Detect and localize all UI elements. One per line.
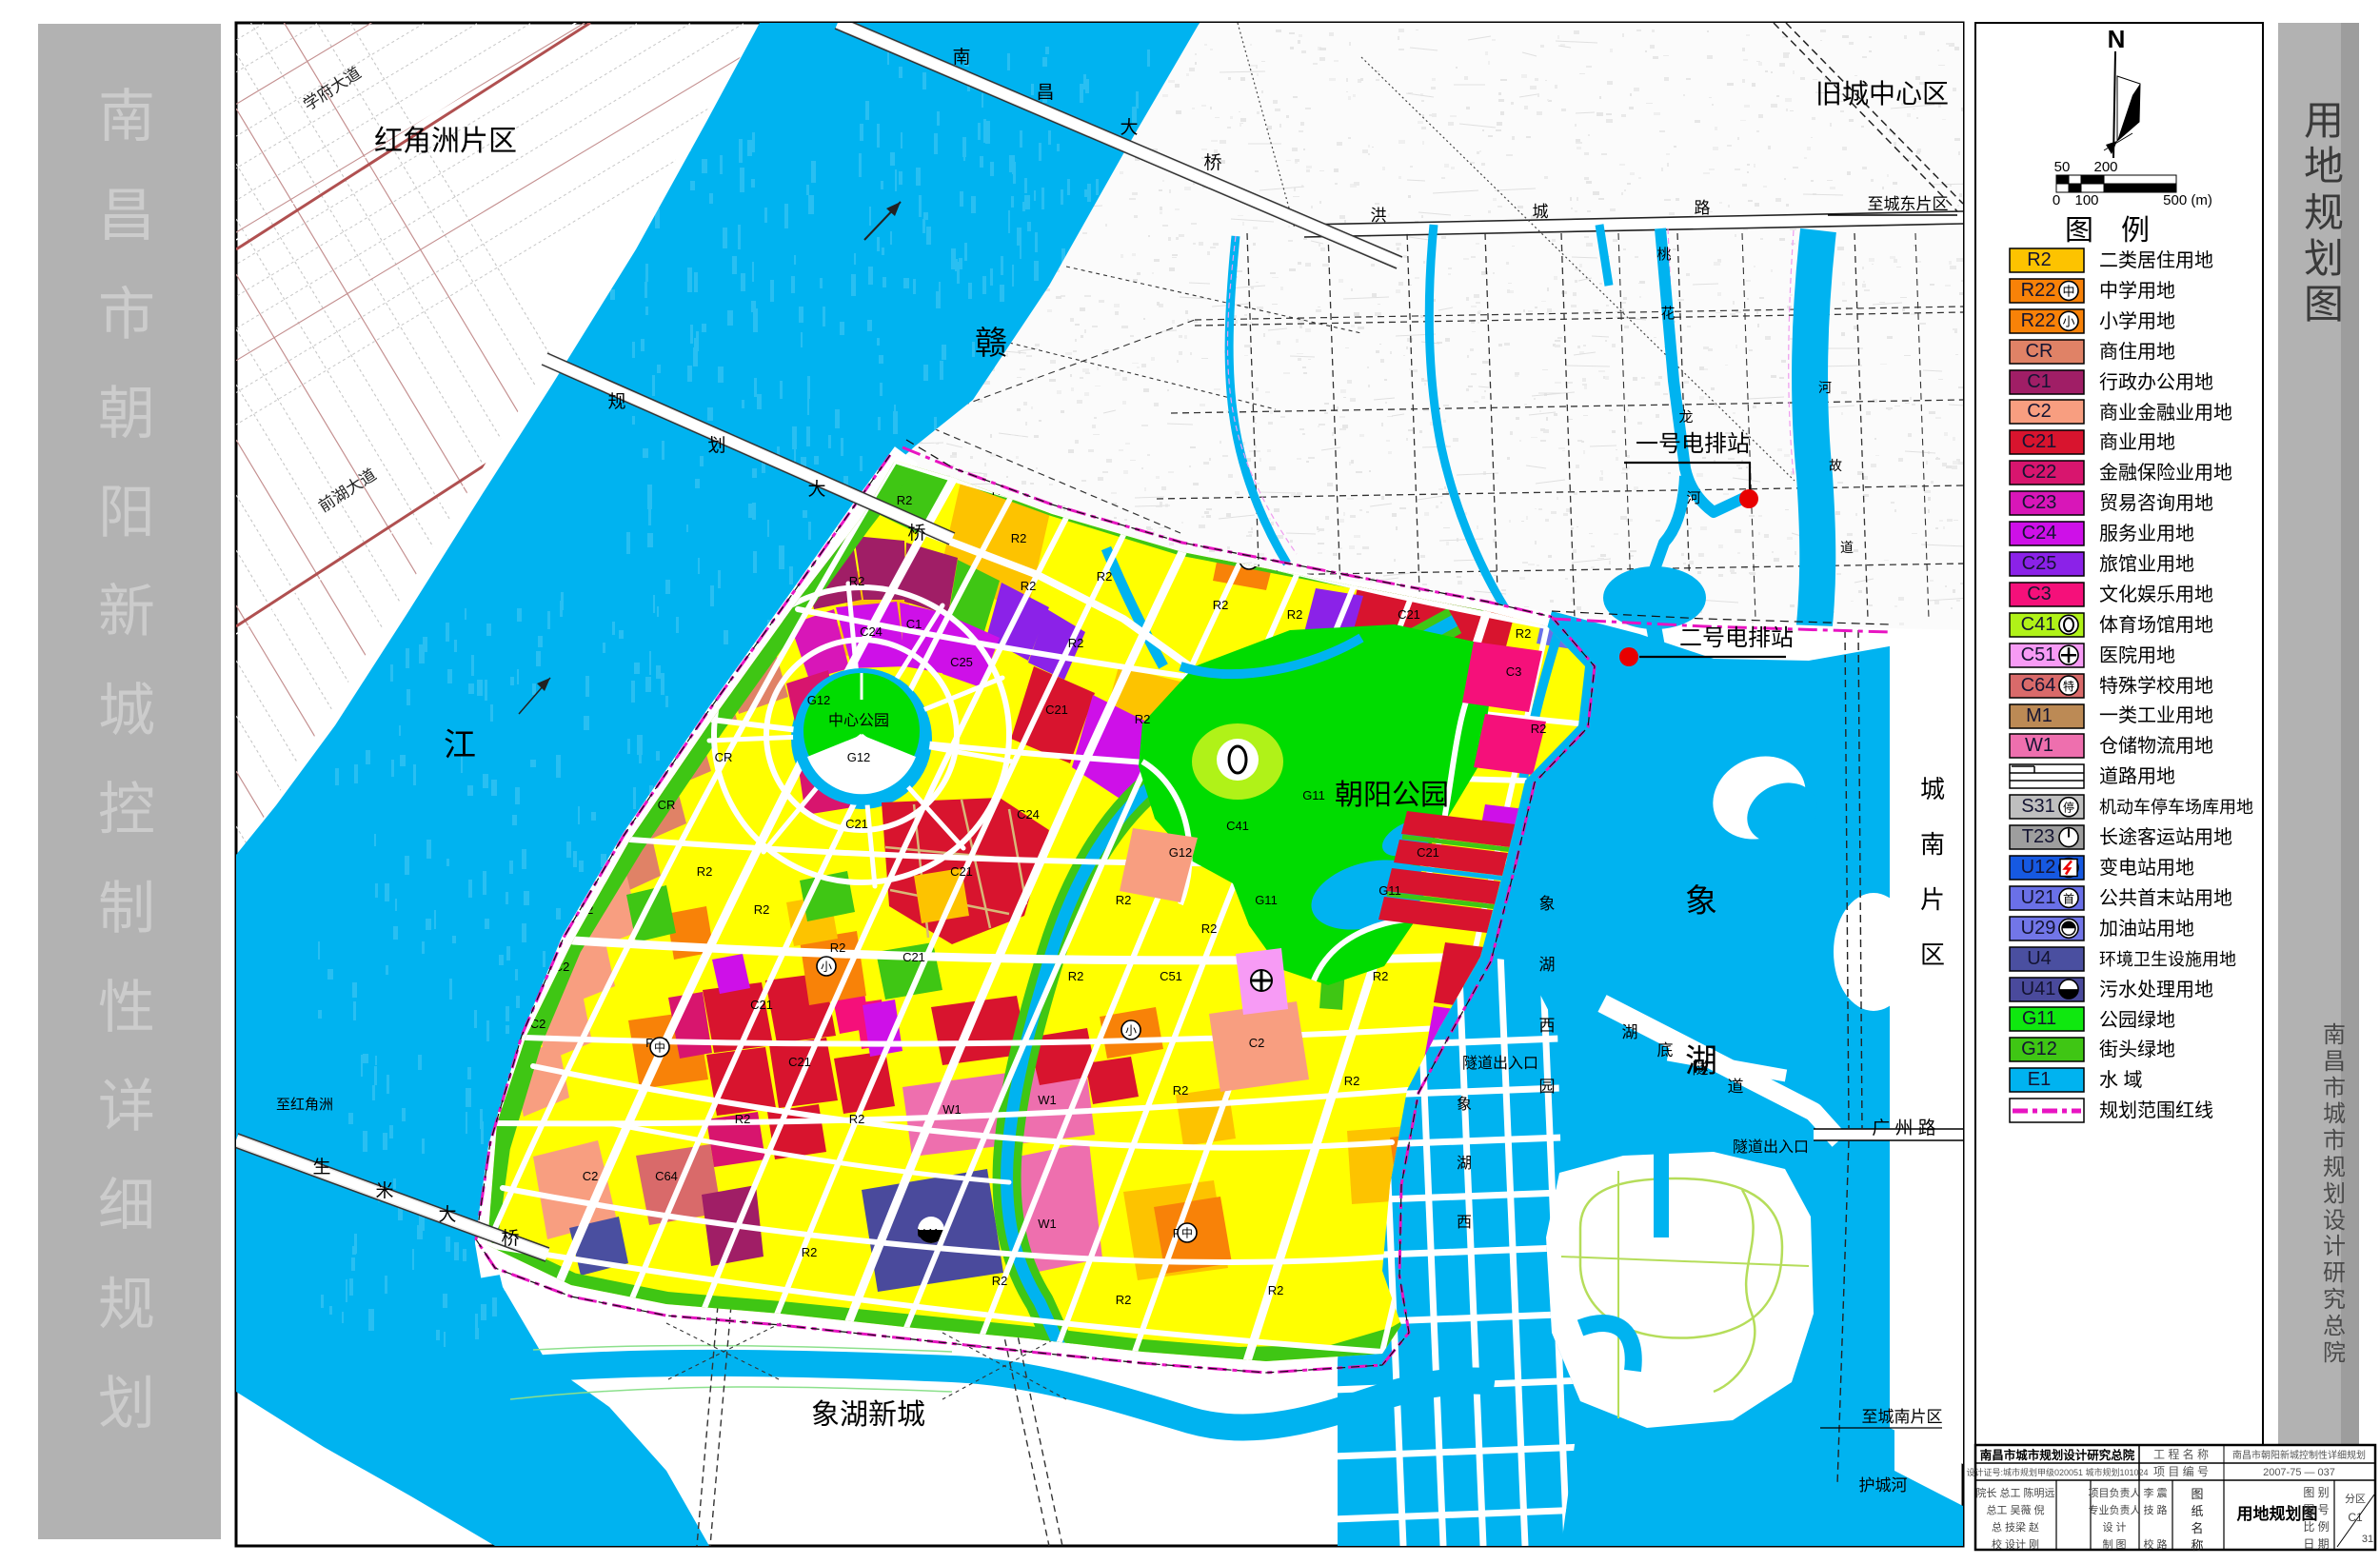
svg-text:院: 院 bbox=[2323, 1340, 2346, 1366]
svg-text:C24: C24 bbox=[860, 624, 883, 639]
svg-text:贸易咨询用地: 贸易咨询用地 bbox=[2099, 492, 2213, 514]
svg-text:污水处理用地: 污水处理用地 bbox=[2099, 979, 2213, 1000]
svg-text:R2: R2 bbox=[897, 493, 913, 507]
svg-text:W1: W1 bbox=[1038, 1093, 1057, 1107]
svg-text:计: 计 bbox=[2323, 1234, 2346, 1259]
svg-text:项目负责人: 项目负责人 bbox=[2089, 1486, 2141, 1499]
svg-text:N: N bbox=[2108, 25, 2126, 53]
svg-text:500 (m): 500 (m) bbox=[2163, 192, 2212, 208]
svg-text:100: 100 bbox=[2074, 192, 2098, 208]
svg-text:G12: G12 bbox=[807, 693, 831, 707]
svg-text:红角洲片区: 红角洲片区 bbox=[374, 126, 517, 157]
svg-text:水 域: 水 域 bbox=[2099, 1069, 2143, 1091]
svg-text:校 设计 刚: 校 设计 刚 bbox=[1992, 1537, 2039, 1551]
svg-text:R2: R2 bbox=[849, 574, 865, 588]
svg-text:道路用地: 道路用地 bbox=[2099, 765, 2175, 787]
svg-text:研: 研 bbox=[2323, 1260, 2346, 1286]
svg-text:G11: G11 bbox=[1378, 883, 1401, 898]
svg-text:R2: R2 bbox=[1213, 598, 1229, 612]
svg-text:环境卫生设施用地: 环境卫生设施用地 bbox=[2099, 950, 2236, 969]
svg-text:R2: R2 bbox=[1268, 1283, 1284, 1297]
svg-text:50: 50 bbox=[2054, 159, 2071, 175]
svg-text:G12: G12 bbox=[847, 750, 871, 764]
svg-text:C21: C21 bbox=[750, 998, 773, 1012]
svg-text:湖: 湖 bbox=[1622, 1023, 1638, 1041]
svg-text:隧道出入口: 隧道出入口 bbox=[1462, 1055, 1538, 1072]
svg-text:中学用地: 中学用地 bbox=[2099, 280, 2175, 302]
svg-text:R2: R2 bbox=[1201, 921, 1218, 936]
svg-text:特: 特 bbox=[2063, 679, 2074, 693]
svg-text:W1: W1 bbox=[942, 1102, 962, 1117]
svg-text:G11: G11 bbox=[1255, 893, 1278, 907]
svg-text:城: 城 bbox=[2323, 1101, 2346, 1127]
svg-text:湖: 湖 bbox=[1539, 956, 1556, 974]
svg-text:设计证号:城市规划甲级020051 城市规划101024: 设计证号:城市规划甲级020051 城市规划101024 bbox=[1966, 1467, 2148, 1477]
svg-text:桥: 桥 bbox=[501, 1228, 519, 1249]
svg-text:南: 南 bbox=[2323, 1022, 2346, 1048]
svg-text:C21: C21 bbox=[1045, 703, 1068, 717]
svg-text:G12: G12 bbox=[2021, 1039, 2057, 1059]
svg-text:R2: R2 bbox=[1135, 712, 1151, 726]
svg-text:规: 规 bbox=[98, 1273, 155, 1336]
svg-text:R2: R2 bbox=[1097, 569, 1113, 584]
svg-text:项 目 编 号: 项 目 编 号 bbox=[2153, 1464, 2209, 1478]
svg-text:生: 生 bbox=[312, 1157, 330, 1178]
svg-text:小: 小 bbox=[2062, 314, 2074, 328]
svg-text:控: 控 bbox=[98, 778, 155, 841]
svg-text:R2: R2 bbox=[1287, 607, 1303, 622]
svg-text:昌: 昌 bbox=[1036, 83, 1054, 103]
svg-text:G11: G11 bbox=[2022, 1008, 2056, 1029]
svg-text:细: 细 bbox=[98, 1174, 155, 1237]
svg-text:C23: C23 bbox=[2022, 492, 2057, 513]
svg-text:R2: R2 bbox=[1373, 969, 1389, 983]
svg-text:机动车停车场库用地: 机动车停车场库用地 bbox=[2099, 798, 2253, 817]
svg-text:中: 中 bbox=[2062, 284, 2074, 298]
svg-text:总工 吴薇 倪: 总工 吴薇 倪 bbox=[1986, 1503, 2044, 1516]
svg-text:新: 新 bbox=[98, 580, 155, 643]
svg-text:U21: U21 bbox=[2021, 887, 2056, 908]
svg-text:规: 规 bbox=[607, 391, 625, 412]
svg-text:旅馆业用地: 旅馆业用地 bbox=[2099, 553, 2194, 575]
svg-text:制 图: 制 图 bbox=[2102, 1538, 2126, 1551]
svg-text:河: 河 bbox=[1818, 380, 1832, 395]
svg-text:究: 究 bbox=[2323, 1287, 2346, 1313]
svg-text:一类工业用地: 一类工业用地 bbox=[2099, 704, 2213, 726]
svg-text:C2: C2 bbox=[2027, 401, 2052, 422]
svg-text:象: 象 bbox=[1685, 883, 1717, 920]
svg-text:200: 200 bbox=[2093, 159, 2117, 175]
svg-text:U4: U4 bbox=[2027, 948, 2052, 969]
svg-text:C3: C3 bbox=[2027, 584, 2052, 604]
svg-text:小: 小 bbox=[821, 960, 832, 974]
svg-text:C21: C21 bbox=[1417, 845, 1439, 860]
svg-text:制: 制 bbox=[98, 877, 155, 940]
svg-text:R2: R2 bbox=[1531, 722, 1547, 736]
svg-text:专业负责人: 专业负责人 bbox=[2089, 1503, 2141, 1516]
svg-text:R2: R2 bbox=[802, 1245, 818, 1259]
svg-text:U41: U41 bbox=[2021, 979, 2056, 1000]
svg-text:体育场馆用地: 体育场馆用地 bbox=[2099, 614, 2213, 636]
svg-text:31: 31 bbox=[2362, 1534, 2373, 1545]
svg-text:C1: C1 bbox=[2027, 371, 2052, 392]
svg-text:城: 城 bbox=[1920, 775, 1945, 803]
svg-text:中心公园: 中心公园 bbox=[828, 712, 889, 729]
svg-text:西: 西 bbox=[1539, 1017, 1556, 1035]
svg-text:市: 市 bbox=[2323, 1128, 2346, 1154]
svg-text:南昌市城市规划设计研究总院: 南昌市城市规划设计研究总院 bbox=[1980, 1448, 2135, 1462]
svg-text:南: 南 bbox=[952, 47, 970, 68]
svg-text:C24: C24 bbox=[1017, 807, 1040, 822]
svg-text:街头绿地: 街头绿地 bbox=[2099, 1039, 2175, 1060]
svg-text:隧道出入口: 隧道出入口 bbox=[1733, 1138, 1809, 1156]
svg-text:C64: C64 bbox=[2021, 675, 2056, 696]
svg-text:至红角洲: 至红角洲 bbox=[276, 1097, 333, 1113]
svg-text:中: 中 bbox=[1181, 1226, 1193, 1240]
svg-text:C41: C41 bbox=[2021, 614, 2056, 635]
svg-text:划: 划 bbox=[2304, 236, 2344, 281]
svg-text:R2: R2 bbox=[849, 1112, 865, 1126]
svg-text:C21: C21 bbox=[902, 950, 925, 964]
svg-text:朝: 朝 bbox=[98, 382, 155, 445]
svg-text:市: 市 bbox=[2323, 1076, 2346, 1101]
svg-text:地: 地 bbox=[2304, 144, 2344, 188]
svg-text:停: 停 bbox=[2063, 801, 2074, 815]
svg-text:中: 中 bbox=[654, 1040, 665, 1055]
svg-text:道: 道 bbox=[1728, 1078, 1744, 1096]
svg-text:C21: C21 bbox=[950, 864, 973, 879]
svg-text:公园绿地: 公园绿地 bbox=[2099, 1009, 2175, 1031]
svg-text:C25: C25 bbox=[950, 655, 973, 669]
svg-text:阳: 阳 bbox=[98, 481, 155, 544]
svg-text:隧: 隧 bbox=[1693, 1059, 1709, 1078]
svg-text:C21: C21 bbox=[845, 817, 868, 831]
svg-text:行政办公用地: 行政办公用地 bbox=[2099, 371, 2213, 393]
svg-text:片: 片 bbox=[1920, 885, 1945, 914]
svg-text:划: 划 bbox=[2323, 1181, 2346, 1207]
svg-text:区: 区 bbox=[1920, 940, 1945, 969]
svg-text:桥: 桥 bbox=[907, 523, 925, 544]
svg-text:C3: C3 bbox=[1506, 664, 1522, 679]
svg-text:M1: M1 bbox=[2026, 705, 2053, 726]
svg-text:R2: R2 bbox=[1116, 1293, 1132, 1307]
svg-text:R2: R2 bbox=[1344, 1074, 1360, 1088]
svg-text:用: 用 bbox=[2304, 98, 2344, 143]
svg-text:划: 划 bbox=[707, 435, 725, 456]
svg-text:C51: C51 bbox=[2021, 644, 2056, 665]
svg-text:C64: C64 bbox=[655, 1169, 678, 1183]
svg-text:仓储物流用地: 仓储物流用地 bbox=[2099, 735, 2213, 757]
svg-text:文化娱乐用地: 文化娱乐用地 bbox=[2099, 584, 2213, 605]
svg-text:C2: C2 bbox=[583, 1169, 599, 1183]
svg-text:江: 江 bbox=[444, 727, 476, 763]
svg-text:C21: C21 bbox=[1398, 607, 1420, 622]
svg-text:河: 河 bbox=[1686, 490, 1700, 506]
svg-text:市: 市 bbox=[98, 283, 155, 346]
svg-text:R2: R2 bbox=[830, 940, 846, 955]
svg-text:划: 划 bbox=[98, 1372, 155, 1435]
svg-text:G12: G12 bbox=[1169, 845, 1193, 860]
svg-text:R2: R2 bbox=[1516, 626, 1532, 641]
svg-text:首: 首 bbox=[2063, 892, 2074, 905]
svg-text:详: 详 bbox=[98, 1075, 155, 1138]
svg-text:变电站用地: 变电站用地 bbox=[2099, 857, 2194, 879]
svg-text:R2: R2 bbox=[2027, 249, 2052, 270]
svg-text:南: 南 bbox=[1920, 830, 1945, 859]
svg-text:城: 城 bbox=[98, 679, 155, 742]
svg-text:小学用地: 小学用地 bbox=[2099, 310, 2175, 332]
svg-text:桥: 桥 bbox=[1203, 152, 1221, 173]
svg-text:图: 图 bbox=[2065, 215, 2093, 247]
svg-text:图 号: 图 号 bbox=[2303, 1503, 2329, 1516]
svg-text:R2: R2 bbox=[1068, 636, 1084, 650]
svg-text:道: 道 bbox=[1840, 540, 1854, 555]
svg-text:加油站用地: 加油站用地 bbox=[2099, 918, 2194, 940]
svg-text:桃: 桃 bbox=[1656, 247, 1671, 263]
svg-text:大: 大 bbox=[807, 479, 825, 500]
svg-text:R2: R2 bbox=[754, 902, 770, 917]
svg-text:旧城中心区: 旧城中心区 bbox=[1815, 79, 1949, 109]
svg-text:R2: R2 bbox=[992, 1274, 1008, 1288]
svg-text:公共首末站用地: 公共首末站用地 bbox=[2099, 887, 2232, 909]
svg-text:C22: C22 bbox=[2022, 462, 2057, 483]
svg-text:图 别: 图 别 bbox=[2303, 1486, 2329, 1499]
svg-text:工 程 名 称: 工 程 名 称 bbox=[2153, 1447, 2209, 1461]
svg-text:W1: W1 bbox=[1038, 1217, 1057, 1231]
svg-text:C1: C1 bbox=[2348, 1511, 2363, 1524]
svg-text:设 计: 设 计 bbox=[2102, 1521, 2126, 1534]
svg-text:校 路: 校 路 bbox=[2143, 1537, 2167, 1551]
svg-text:纸: 纸 bbox=[2191, 1504, 2203, 1518]
svg-text:总: 总 bbox=[2323, 1314, 2346, 1339]
svg-text:大: 大 bbox=[1120, 117, 1138, 138]
svg-text:日 期: 日 期 bbox=[2303, 1537, 2329, 1551]
svg-text:赣: 赣 bbox=[975, 326, 1007, 362]
svg-text:例: 例 bbox=[2121, 215, 2150, 247]
svg-text:称: 称 bbox=[2191, 1538, 2203, 1553]
svg-text:湖: 湖 bbox=[1457, 1155, 1472, 1172]
svg-text:一号电排站: 一号电排站 bbox=[1636, 431, 1750, 457]
svg-text:商业金融业用地: 商业金融业用地 bbox=[2099, 402, 2232, 424]
svg-text:C2: C2 bbox=[1249, 1036, 1265, 1050]
svg-text:二类居住用地: 二类居住用地 bbox=[2099, 249, 2213, 271]
svg-text:图: 图 bbox=[2304, 282, 2344, 327]
svg-text:象湖新城: 象湖新城 bbox=[811, 1399, 925, 1431]
svg-text:技 路: 技 路 bbox=[2143, 1504, 2167, 1516]
svg-text:U29: U29 bbox=[2021, 918, 2056, 939]
svg-text:S31: S31 bbox=[2021, 796, 2055, 817]
svg-text:R22: R22 bbox=[2021, 280, 2056, 301]
svg-text:昌: 昌 bbox=[2323, 1049, 2346, 1075]
svg-text:CR: CR bbox=[2026, 341, 2053, 362]
svg-text:R2: R2 bbox=[1116, 893, 1132, 907]
svg-text:金融保险业用地: 金融保险业用地 bbox=[2099, 462, 2232, 484]
svg-text:G11: G11 bbox=[1302, 788, 1325, 802]
svg-text:洪: 洪 bbox=[1371, 207, 1387, 225]
svg-text:城: 城 bbox=[1533, 203, 1549, 221]
svg-text:R2: R2 bbox=[1021, 579, 1037, 593]
svg-text:李 震: 李 震 bbox=[2143, 1486, 2167, 1499]
svg-text:路: 路 bbox=[1695, 199, 1711, 217]
svg-text:故: 故 bbox=[1829, 458, 1842, 473]
svg-text:2007-75 — 037: 2007-75 — 037 bbox=[2263, 1467, 2335, 1478]
svg-text:西: 西 bbox=[1457, 1215, 1472, 1231]
svg-text:商住用地: 商住用地 bbox=[2099, 341, 2175, 363]
svg-text:E1: E1 bbox=[2028, 1069, 2051, 1090]
svg-text:特殊学校用地: 特殊学校用地 bbox=[2099, 675, 2213, 697]
svg-text:至城南片区: 至城南片区 bbox=[1862, 1408, 1943, 1426]
svg-text:象: 象 bbox=[1539, 895, 1556, 913]
svg-text:C1: C1 bbox=[906, 617, 922, 631]
svg-text:R22: R22 bbox=[2021, 310, 2056, 331]
svg-text:大: 大 bbox=[438, 1204, 456, 1225]
svg-text:R2: R2 bbox=[1011, 531, 1027, 545]
svg-text:CR: CR bbox=[715, 750, 733, 764]
svg-text:规划范围红线: 规划范围红线 bbox=[2099, 1099, 2213, 1121]
svg-text:南: 南 bbox=[98, 85, 155, 148]
svg-text:0: 0 bbox=[2053, 192, 2060, 208]
svg-text:U12: U12 bbox=[2021, 857, 2056, 878]
svg-text:护城河: 护城河 bbox=[1859, 1476, 1908, 1495]
svg-text:C51: C51 bbox=[1160, 969, 1182, 983]
svg-text:朝阳公园: 朝阳公园 bbox=[1335, 780, 1449, 811]
svg-text:二号电排站: 二号电排站 bbox=[1679, 625, 1794, 651]
svg-text:W1: W1 bbox=[2025, 735, 2053, 756]
svg-text:服务业用地: 服务业用地 bbox=[2099, 523, 2194, 544]
svg-text:R2: R2 bbox=[1068, 969, 1084, 983]
svg-text:T23: T23 bbox=[2022, 826, 2054, 847]
svg-text:分区: 分区 bbox=[2345, 1493, 2366, 1505]
svg-text:昌: 昌 bbox=[98, 184, 155, 247]
svg-text:广 州 路: 广 州 路 bbox=[1872, 1118, 1936, 1138]
svg-text:名: 名 bbox=[2191, 1521, 2203, 1535]
svg-text:米: 米 bbox=[375, 1180, 393, 1201]
svg-text:CR: CR bbox=[658, 798, 676, 812]
svg-text:设: 设 bbox=[2323, 1208, 2346, 1234]
svg-text:图: 图 bbox=[2191, 1487, 2203, 1501]
svg-text:R2: R2 bbox=[697, 864, 713, 879]
svg-text:商业用地: 商业用地 bbox=[2099, 431, 2175, 453]
svg-text:底: 底 bbox=[1657, 1041, 1674, 1059]
svg-text:象: 象 bbox=[1457, 1096, 1472, 1113]
svg-text:规: 规 bbox=[2304, 190, 2344, 235]
svg-text:R2: R2 bbox=[1173, 1083, 1189, 1098]
svg-text:园: 园 bbox=[1539, 1078, 1556, 1096]
svg-text:医院用地: 医院用地 bbox=[2099, 644, 2175, 666]
svg-text:性: 性 bbox=[98, 976, 155, 1039]
svg-text:花: 花 bbox=[1660, 306, 1675, 322]
svg-text:南昌市朝阳新城控制性详细规划: 南昌市朝阳新城控制性详细规划 bbox=[2232, 1449, 2366, 1461]
svg-text:院长 总工 陈明远: 院长 总工 陈明远 bbox=[1975, 1486, 2054, 1499]
svg-text:C21: C21 bbox=[788, 1055, 811, 1069]
svg-text:U41: U41 bbox=[917, 1226, 940, 1240]
svg-text:规: 规 bbox=[2323, 1155, 2346, 1180]
svg-text:比 例: 比 例 bbox=[2303, 1520, 2329, 1534]
svg-text:长途客运站用地: 长途客运站用地 bbox=[2099, 826, 2232, 848]
svg-text:C24: C24 bbox=[2022, 523, 2057, 544]
svg-text:总 技梁 赵: 总 技梁 赵 bbox=[1992, 1520, 2039, 1534]
svg-text:R2: R2 bbox=[735, 1112, 751, 1126]
svg-text:C25: C25 bbox=[2022, 553, 2057, 574]
svg-text:C21: C21 bbox=[2022, 431, 2057, 452]
svg-text:C41: C41 bbox=[1226, 819, 1249, 833]
svg-text:小: 小 bbox=[1125, 1024, 1137, 1038]
svg-text:龙: 龙 bbox=[1678, 409, 1693, 426]
svg-text:至城东片区: 至城东片区 bbox=[1868, 195, 1949, 213]
